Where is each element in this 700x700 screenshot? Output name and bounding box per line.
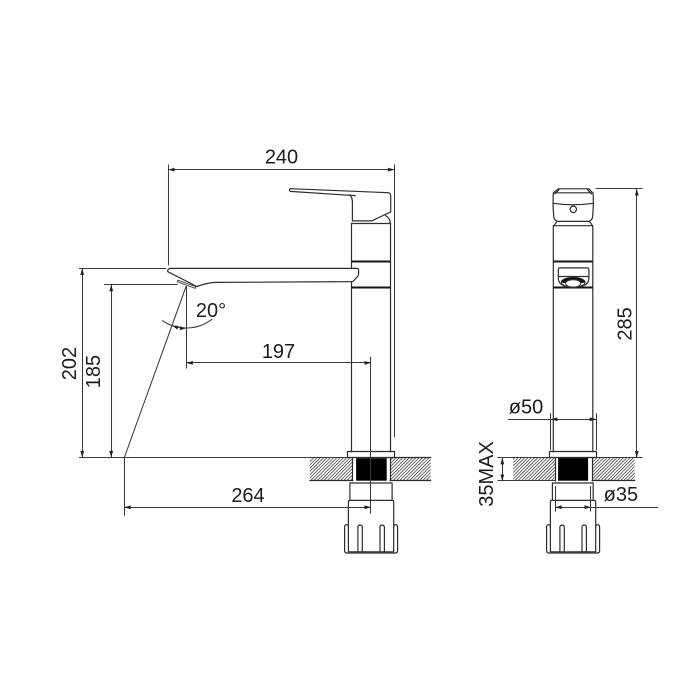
svg-text:35MAX: 35MAX — [476, 441, 498, 507]
svg-text:202: 202 — [59, 347, 81, 380]
svg-text:285: 285 — [614, 307, 636, 340]
svg-text:185: 185 — [83, 355, 105, 388]
svg-text:197: 197 — [262, 341, 295, 363]
svg-text:20°: 20° — [196, 300, 226, 322]
svg-text:ø50: ø50 — [509, 396, 543, 418]
svg-text:240: 240 — [265, 146, 298, 168]
svg-text:264: 264 — [231, 485, 264, 507]
svg-text:ø35: ø35 — [604, 484, 638, 506]
